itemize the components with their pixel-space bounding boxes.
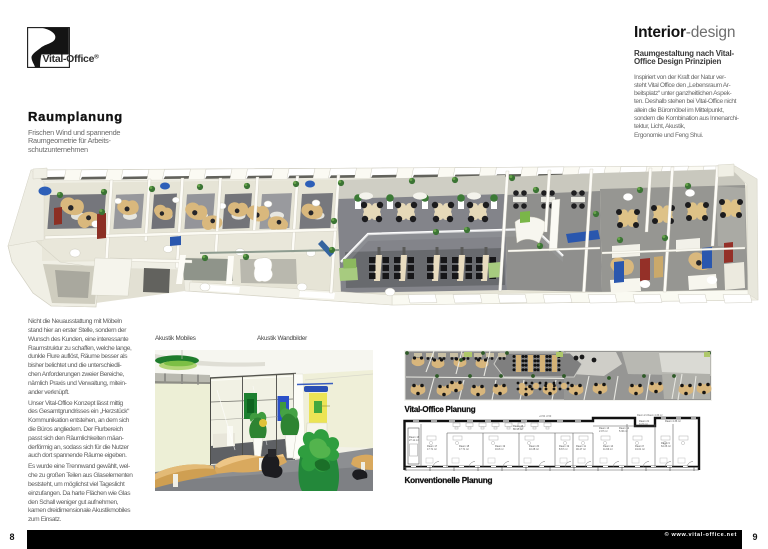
svg-text:11.66 m²: 11.66 m²	[603, 448, 613, 451]
svg-text:64.26 m²: 64.26 m²	[661, 445, 671, 448]
svg-text:2.07 m²: 2.07 m²	[599, 430, 608, 433]
svg-text:16.8 m²: 16.8 m²	[495, 448, 504, 451]
svg-text:0.22 m²: 0.22 m²	[639, 423, 648, 426]
svg-text:17.71 m²: 17.71 m²	[459, 448, 469, 451]
svg-text:+0.50 -0.50: +0.50 -0.50	[539, 415, 552, 418]
svg-text:Raum 4.36 m²: Raum 4.36 m²	[665, 420, 681, 423]
svg-text:10.28 m²: 10.28 m²	[529, 448, 539, 451]
svg-text:19.01 m²: 19.01 m²	[635, 448, 645, 451]
svg-text:27.11 m²: 27.11 m²	[409, 439, 419, 442]
svg-text:8.67 m²: 8.67 m²	[559, 448, 568, 451]
svg-text:17.71 m²: 17.71 m²	[427, 448, 437, 451]
svg-text:5.36 m²: 5.36 m²	[619, 430, 628, 433]
svg-text:Raum 21 Raum 4.36 m²: Raum 21 Raum 4.36 m²	[637, 414, 663, 417]
svg-text:86.95 m²: 86.95 m²	[513, 428, 523, 431]
svg-text:46.47 m²: 46.47 m²	[576, 448, 586, 451]
